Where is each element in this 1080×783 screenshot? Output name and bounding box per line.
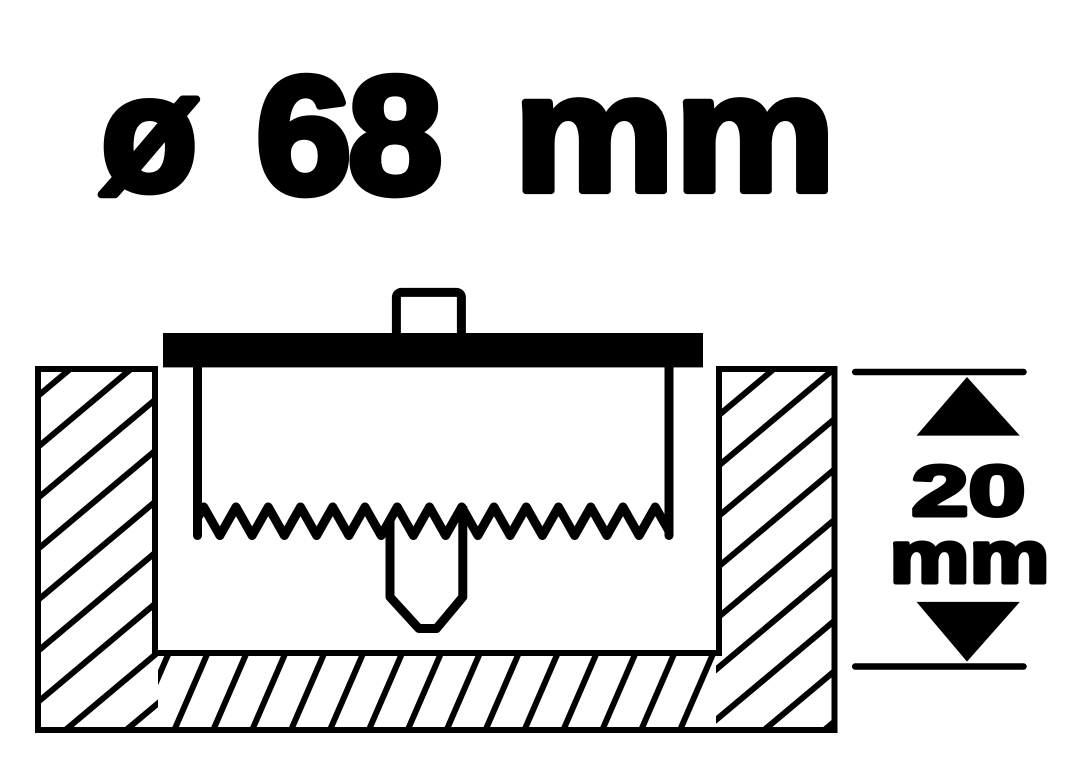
svg-text:ø: ø [101, 42, 197, 226]
svg-text:m: m [674, 40, 835, 227]
svg-text:mm: mm [890, 516, 1050, 599]
svg-text:8: 8 [348, 42, 442, 228]
svg-text:6: 6 [256, 42, 352, 228]
svg-text:m: m [513, 40, 674, 227]
